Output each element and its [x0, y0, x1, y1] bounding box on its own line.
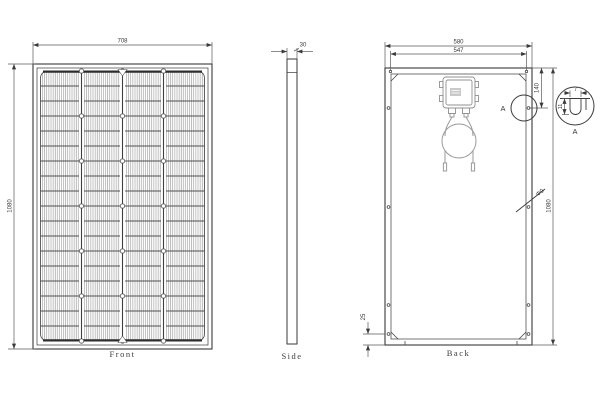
side-view-label: Side	[281, 351, 302, 361]
junction-box	[440, 77, 479, 117]
front-cell-grid	[41, 69, 205, 343]
mounting-holes	[387, 70, 530, 335]
back-hole-span-dimension: 547	[391, 48, 527, 70]
back-height-dimension: 1080	[532, 68, 557, 345]
front-width-value: 708	[117, 39, 128, 45]
back-hole-bottom-value: 25	[361, 313, 367, 320]
back-width-value: 580	[453, 40, 464, 46]
cable-loop	[442, 124, 476, 158]
front-height-value: 1080	[8, 199, 14, 213]
drain-hole-leader: Φ9	[516, 188, 546, 212]
front-view-label: Front	[110, 349, 136, 359]
connector	[471, 163, 474, 171]
back-height-value: 1080	[547, 199, 553, 213]
junction-box-label	[450, 88, 461, 96]
back-view: 580 547 140 1080 25	[361, 40, 557, 359]
front-width-dimension: 708	[33, 39, 212, 65]
back-hole-bottom-dimension: 25	[361, 313, 385, 357]
detail-slot-depth-dimension: 11	[558, 99, 569, 115]
side-view: 30 Side	[271, 43, 313, 362]
cables	[442, 117, 476, 171]
detail-a-label: A	[572, 127, 577, 136]
front-height-dimension: 1080	[8, 64, 37, 349]
side-thickness-dimension: 30	[271, 43, 313, 60]
connector	[443, 163, 446, 171]
side-thickness-value: 30	[300, 43, 307, 49]
back-hole-top-value: 140	[535, 82, 541, 93]
back-frame-inner	[391, 74, 526, 339]
back-frame-outer	[385, 68, 532, 345]
detail-a-view: 7 11 A	[556, 87, 594, 136]
technical-drawing-solar-panel: 708 1080 Front 30 Side	[0, 0, 600, 400]
detail-slot-depth-value: 11	[558, 104, 564, 110]
back-view-label: Back	[447, 348, 470, 358]
side-profile	[287, 59, 297, 344]
front-view: 708 1080 Front	[8, 39, 213, 360]
detail-slot-width-value: 7	[574, 87, 577, 93]
callout-letter: A	[500, 104, 505, 113]
back-hole-span-value: 547	[453, 48, 464, 54]
drawing-sheet: 708 1080 Front 30 Side	[0, 0, 600, 400]
